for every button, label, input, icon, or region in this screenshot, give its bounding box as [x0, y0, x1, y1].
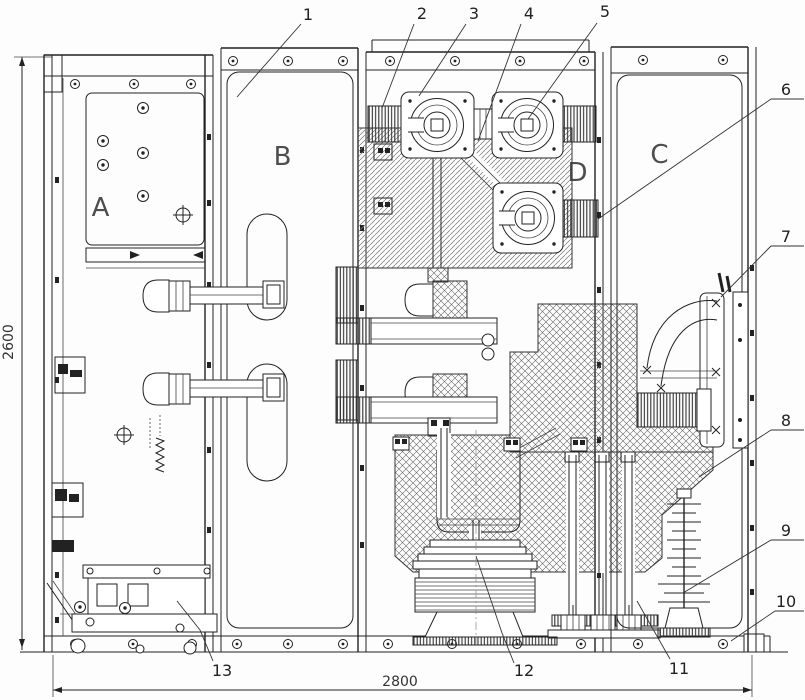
terminal-fittings	[559, 605, 643, 631]
callout-10: 10	[776, 592, 796, 611]
bushing-2	[492, 92, 563, 158]
tube-right-lower	[563, 200, 598, 237]
callout-12: 12	[514, 661, 534, 680]
cabinet-b: B	[143, 48, 366, 652]
callout-3: 3	[469, 4, 479, 23]
compartment-label-d: D	[567, 158, 588, 188]
bushing-3	[493, 183, 563, 253]
callout-5: 5	[600, 2, 610, 21]
compartment-label-b: B	[274, 142, 293, 172]
cabinet-a: A	[44, 48, 221, 654]
bushing-1	[401, 92, 474, 158]
callout-7: 7	[781, 227, 791, 246]
callout-8: 8	[781, 411, 791, 430]
cable-termination	[637, 273, 748, 448]
dim-width-value: 2800	[382, 674, 418, 690]
callout-2: 2	[417, 4, 427, 23]
compartment-label-a: A	[92, 193, 111, 223]
drawing-canvas: 2600 2800 A	[0, 0, 805, 700]
callout-6: 6	[781, 80, 791, 99]
dim-height-value: 2600	[1, 324, 17, 360]
switchgear-section-drawing: 2600 2800 A	[0, 0, 805, 700]
callout-9: 9	[781, 521, 791, 540]
tube-left	[368, 106, 401, 142]
tube-right-upper	[563, 106, 596, 142]
callout-1: 1	[303, 5, 313, 24]
compartment-label-c: C	[650, 140, 669, 170]
callout-11: 11	[669, 659, 689, 678]
callout-13: 13	[212, 661, 232, 680]
cabinet-d	[336, 40, 713, 652]
pole-assembly-upper	[336, 281, 497, 344]
callout-4: 4	[524, 4, 534, 23]
pole-assembly-lower	[336, 374, 497, 423]
